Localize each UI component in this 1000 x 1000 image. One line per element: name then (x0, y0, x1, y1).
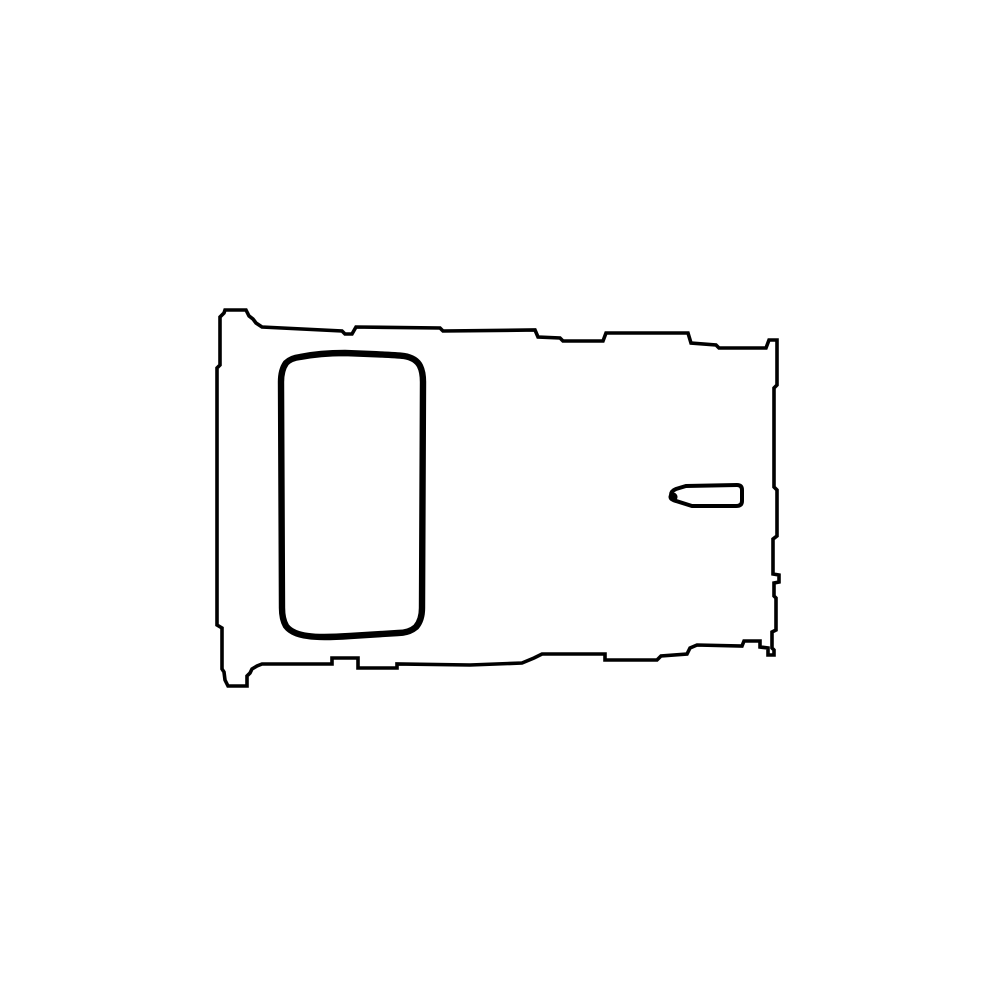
side-slot-tip-dot (669, 493, 678, 502)
outer-outline-path (217, 310, 779, 686)
side-slot-path (671, 485, 742, 506)
drawing-canvas (0, 0, 1000, 1000)
part-outline-drawing (0, 0, 1000, 1000)
inner-rounded-rect-cutout-path (281, 353, 423, 637)
